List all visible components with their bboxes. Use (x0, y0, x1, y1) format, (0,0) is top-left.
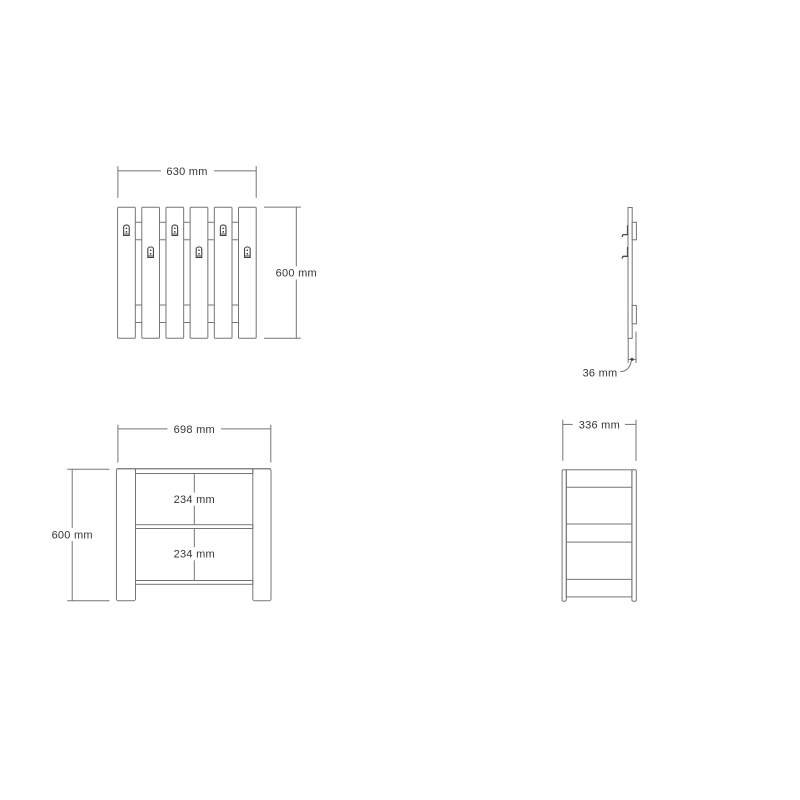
svg-text:698 mm: 698 mm (174, 424, 215, 436)
svg-text:630 mm: 630 mm (166, 166, 207, 178)
svg-text:234 mm: 234 mm (174, 494, 215, 506)
svg-text:336 mm: 336 mm (579, 419, 620, 431)
svg-text:234 mm: 234 mm (174, 549, 215, 561)
svg-text:600 mm: 600 mm (276, 268, 317, 280)
svg-text:600 mm: 600 mm (52, 529, 93, 541)
svg-text:36 mm: 36 mm (583, 367, 618, 379)
